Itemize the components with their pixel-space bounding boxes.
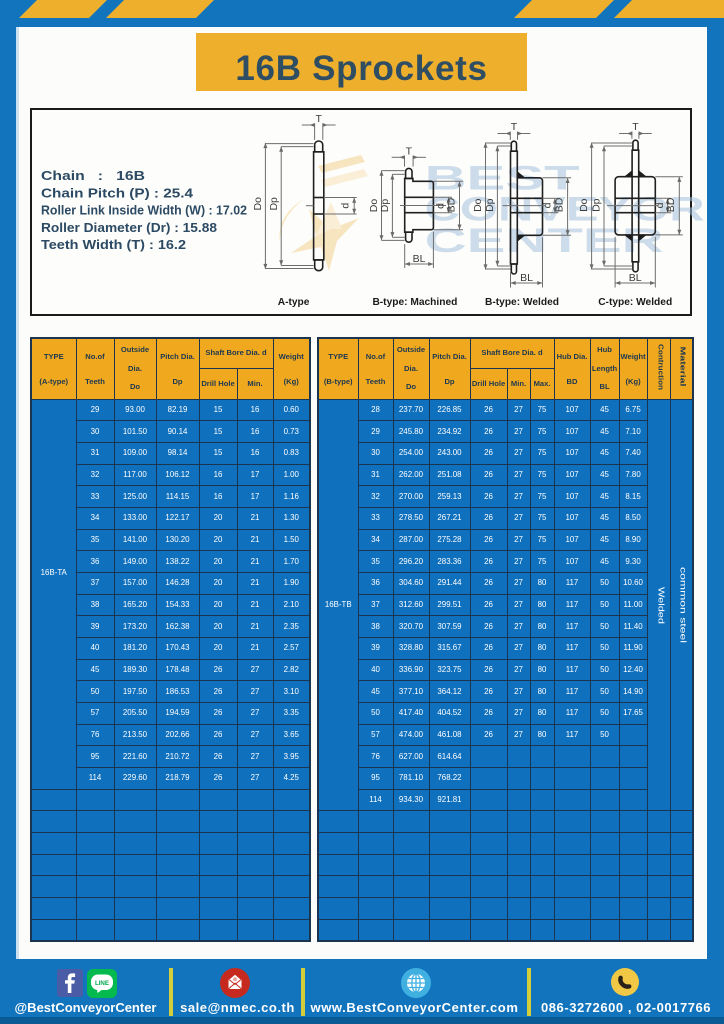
svg-text:Material: Material [679, 347, 688, 387]
svg-text:LINE: LINE [95, 980, 109, 987]
svg-text:Contruction: Contruction [657, 344, 666, 390]
svg-text:common steel: common steel [679, 567, 688, 643]
svg-text:Welded: Welded [657, 587, 666, 624]
